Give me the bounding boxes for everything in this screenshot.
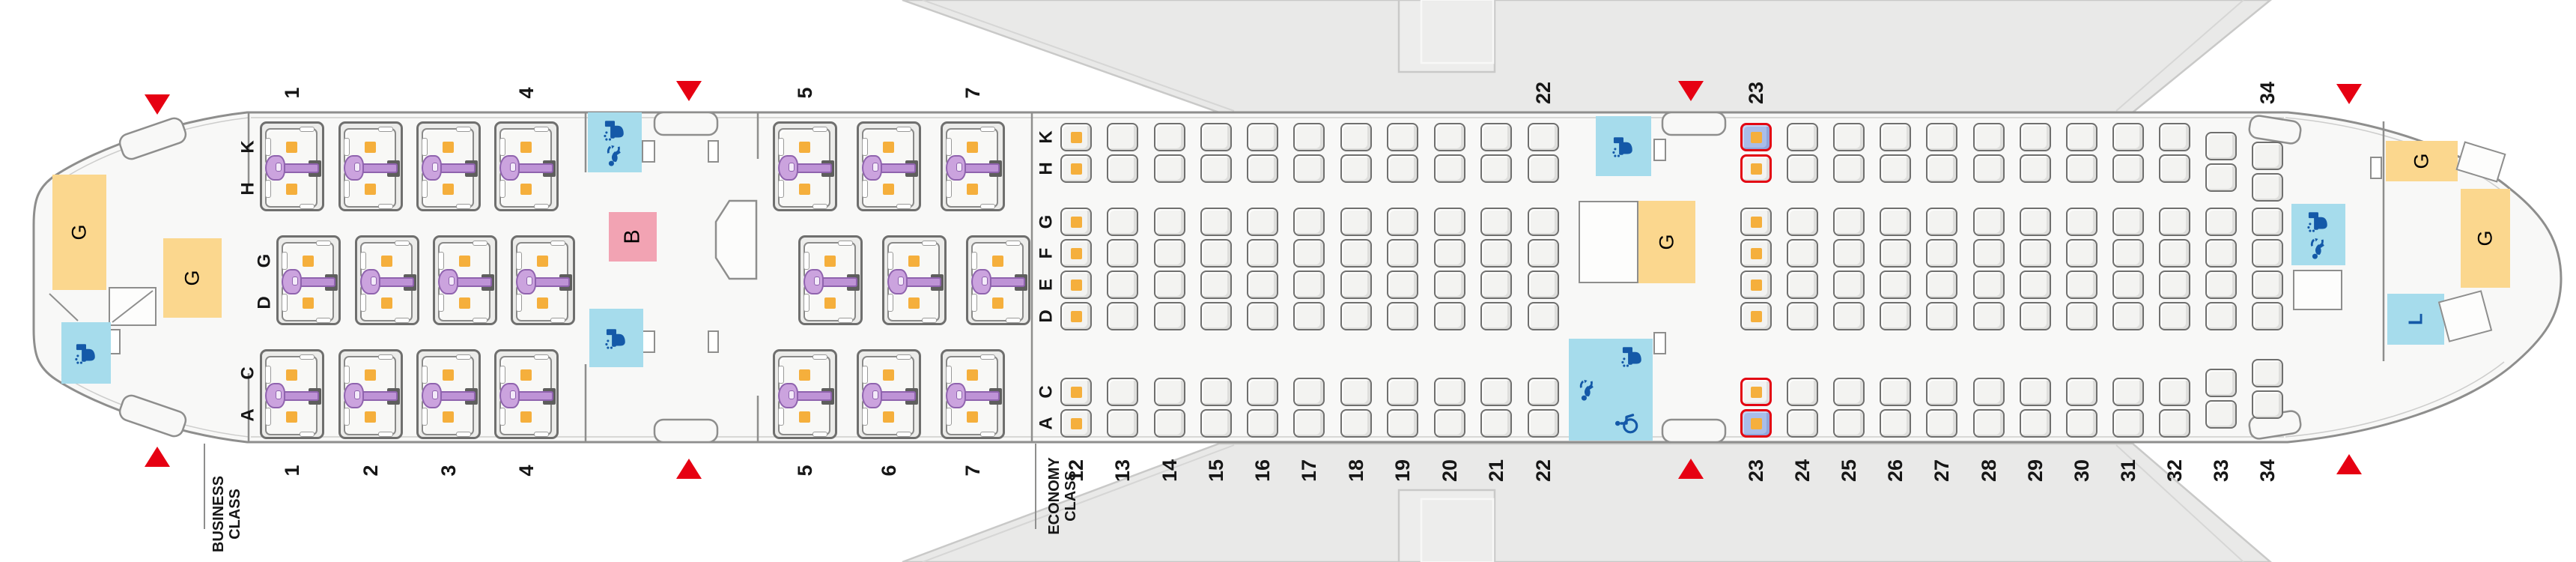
seat-24K[interactable] [1787, 123, 1818, 151]
seat-29K[interactable] [2020, 123, 2051, 151]
seat-18K[interactable] [1340, 123, 1372, 151]
seat-34E[interactable] [2252, 271, 2283, 299]
economy-seat-letter-F: F [1036, 248, 1055, 259]
seat-13C[interactable] [1107, 378, 1138, 406]
seat-23D[interactable] [1740, 302, 1772, 330]
seat-feature-marker [799, 411, 810, 423]
closet-block [2293, 270, 2342, 310]
seat-22A[interactable] [1528, 409, 1559, 438]
seat-25C[interactable] [1833, 378, 1865, 406]
seat-22C[interactable] [1528, 378, 1559, 406]
seat-31H[interactable] [2112, 154, 2144, 183]
armrest [300, 127, 315, 132]
seat-32H[interactable] [2159, 154, 2190, 183]
economy-seat-letter-A: A [1036, 417, 1055, 429]
seat-27C[interactable] [1926, 378, 1957, 406]
seat-25D[interactable] [1833, 302, 1865, 330]
seat-30F[interactable] [2066, 239, 2097, 268]
attendant-seat [643, 331, 654, 352]
seat-34C[interactable] [2252, 359, 2283, 387]
seat-feature-marker [1751, 418, 1762, 429]
seat-15E[interactable] [1200, 271, 1232, 299]
business-seat-letter-H: H [238, 182, 257, 195]
aircraft-seat-map: BUSINESS CLASS ECONOMY CLASS GG B G [0, 0, 2576, 562]
seat-30A[interactable] [2066, 409, 2097, 438]
seat-25F[interactable] [1833, 239, 1865, 268]
seat-14E[interactable] [1154, 271, 1185, 299]
seat-16G[interactable] [1247, 208, 1278, 236]
bar-counter-block-label: B [621, 229, 645, 244]
seat-15G[interactable] [1200, 208, 1232, 236]
seat-16C[interactable] [1247, 378, 1278, 406]
seat-26C[interactable] [1880, 378, 1911, 406]
headrest [971, 294, 977, 312]
seat-12K[interactable] [1060, 123, 1092, 151]
seat-feature-marker [883, 411, 894, 423]
seat-28D[interactable] [1973, 302, 2005, 330]
seat-21D[interactable] [1480, 302, 1512, 330]
seat-21E[interactable] [1480, 271, 1512, 299]
seat-12H[interactable] [1060, 154, 1092, 183]
armrest [378, 354, 393, 360]
seat-16H[interactable] [1247, 154, 1278, 183]
seat-14F[interactable] [1154, 239, 1185, 268]
toilet-icon [2306, 208, 2331, 234]
armrest [395, 241, 410, 246]
seat-14D[interactable] [1154, 302, 1185, 330]
seat-19F[interactable] [1387, 239, 1418, 268]
seat-24A[interactable] [1787, 409, 1818, 438]
seat-14G[interactable] [1154, 208, 1185, 236]
seat-feature-marker [443, 411, 454, 423]
seat-30E[interactable] [2066, 271, 2097, 299]
seat-28H[interactable] [1973, 154, 2005, 183]
armrest [550, 241, 565, 246]
seat-ottoman [946, 155, 966, 181]
seat-26F[interactable] [1880, 239, 1911, 268]
seat-31D[interactable] [2112, 302, 2144, 330]
seat-17F[interactable] [1293, 239, 1325, 268]
row-label-bottom-7: 7 [962, 465, 983, 476]
seat-33H[interactable] [2205, 163, 2237, 192]
seat-12A[interactable] [1060, 409, 1092, 438]
seat-14H[interactable] [1154, 154, 1185, 183]
seat-29E[interactable] [2020, 271, 2051, 299]
seat-18A[interactable] [1340, 409, 1372, 438]
armrest [1006, 318, 1021, 323]
seat-27F[interactable] [1926, 239, 1957, 268]
seat-27D[interactable] [1926, 302, 1957, 330]
seat-32F[interactable] [2159, 239, 2190, 268]
seat-30H[interactable] [2066, 154, 2097, 183]
galley-block-label: G [2411, 153, 2434, 169]
headrest [516, 252, 522, 270]
exit-marker-bottom-door4 [2336, 454, 2362, 474]
headrest [862, 138, 868, 156]
seat-33D[interactable] [2205, 302, 2237, 330]
armrest [456, 127, 471, 132]
seat-18C[interactable] [1340, 378, 1372, 406]
seat-23E[interactable] [1740, 271, 1772, 299]
seat-21H[interactable] [1480, 154, 1512, 183]
seat-23A[interactable] [1740, 409, 1772, 438]
seat-25G[interactable] [1833, 208, 1865, 236]
seat-27H[interactable] [1926, 154, 1957, 183]
seat-ottoman [360, 269, 380, 294]
seat-22D[interactable] [1528, 302, 1559, 330]
seat-34D[interactable] [2252, 302, 2283, 330]
seat-22K[interactable] [1528, 123, 1559, 151]
seat-31A[interactable] [2112, 409, 2144, 438]
attendant-seat [1654, 333, 1665, 354]
seat-21A[interactable] [1480, 409, 1512, 438]
seat-32C[interactable] [2159, 378, 2190, 406]
business-seat-letter-A: A [238, 408, 257, 421]
seat-19D[interactable] [1387, 302, 1418, 330]
seat-33K[interactable] [2205, 132, 2237, 160]
seat-32E[interactable] [2159, 271, 2190, 299]
armrest [378, 432, 393, 437]
headrest [422, 180, 428, 198]
armrest [896, 354, 911, 360]
economy-seat-letter-E: E [1036, 279, 1055, 291]
seat-26E[interactable] [1880, 271, 1911, 299]
business-seat-unit-row5 [773, 349, 837, 439]
business-seat-unit-row4 [494, 121, 559, 211]
seat-33F[interactable] [2205, 239, 2237, 268]
seat-25A[interactable] [1833, 409, 1865, 438]
seat-22E[interactable] [1528, 271, 1559, 299]
seat-12E[interactable] [1060, 271, 1092, 299]
seat-28A[interactable] [1973, 409, 2005, 438]
seat-19C[interactable] [1387, 378, 1418, 406]
armrest [896, 432, 911, 437]
seat-20A[interactable] [1434, 409, 1465, 438]
seat-13K[interactable] [1107, 123, 1138, 151]
seat-18D[interactable] [1340, 302, 1372, 330]
seat-16F[interactable] [1247, 239, 1278, 268]
headrest [422, 138, 428, 156]
attendant-seat [708, 331, 718, 352]
seat-29D[interactable] [2020, 302, 2051, 330]
seat-12C[interactable] [1060, 378, 1092, 406]
baby-care-icon [602, 142, 628, 168]
seat-13G[interactable] [1107, 208, 1138, 236]
seat-29G[interactable] [2020, 208, 2051, 236]
seat-17H[interactable] [1293, 154, 1325, 183]
seat-26K[interactable] [1880, 123, 1911, 151]
seat-13A[interactable] [1107, 409, 1138, 438]
seat-26H[interactable] [1880, 154, 1911, 183]
business-seat-unit-row2 [338, 349, 403, 439]
seat-33G[interactable] [2205, 208, 2237, 236]
seat-12D[interactable] [1060, 302, 1092, 330]
seat-feature-marker [520, 369, 532, 381]
seat-28F[interactable] [1973, 239, 2005, 268]
seat-16D[interactable] [1247, 302, 1278, 330]
headrest [887, 294, 893, 312]
headrest [265, 408, 271, 426]
seat-23H[interactable] [1740, 154, 1772, 183]
seat-ottoman [499, 383, 520, 408]
seat-feature-marker [1071, 163, 1082, 175]
galley-block-label: G [181, 270, 204, 285]
seat-20D[interactable] [1434, 302, 1465, 330]
armrest [896, 127, 911, 132]
seat-33C[interactable] [2205, 369, 2237, 397]
headrest [360, 294, 366, 312]
headrest [344, 366, 350, 384]
seat-12F[interactable] [1060, 239, 1092, 268]
seat-14K[interactable] [1154, 123, 1185, 151]
seat-21G[interactable] [1480, 208, 1512, 236]
seat-17C[interactable] [1293, 378, 1325, 406]
seat-feature-marker [1751, 132, 1762, 143]
business-seat-unit-row4 [511, 235, 575, 325]
closet-block [1579, 201, 1638, 283]
seat-31C[interactable] [2112, 378, 2144, 406]
seat-24D[interactable] [1787, 302, 1818, 330]
seat-31G[interactable] [2112, 208, 2144, 236]
seat-29H[interactable] [2020, 154, 2051, 183]
seat-23F[interactable] [1740, 239, 1772, 268]
seat-feature-marker [381, 297, 392, 309]
row-label-bottom-21: 21 [1486, 459, 1507, 482]
seat-20K[interactable] [1434, 123, 1465, 151]
seat-feature-marker [443, 184, 454, 195]
seat-34A[interactable] [2252, 390, 2283, 419]
headrest [946, 180, 952, 198]
toilet-icon [602, 117, 628, 142]
galley-block: G [2386, 141, 2458, 181]
seat-15F[interactable] [1200, 239, 1232, 268]
business-seat-letter-G: G [255, 254, 273, 268]
seat-34H[interactable] [2252, 173, 2283, 202]
attendant-seat [2371, 157, 2381, 178]
seat-23G[interactable] [1740, 208, 1772, 236]
seat-31K[interactable] [2112, 123, 2144, 151]
seat-16K[interactable] [1247, 123, 1278, 151]
seat-13F[interactable] [1107, 239, 1138, 268]
headrest [887, 252, 893, 270]
galley-block-label: G [68, 224, 91, 240]
seat-24G[interactable] [1787, 208, 1818, 236]
seat-feature-marker [365, 369, 376, 381]
seat-24C[interactable] [1787, 378, 1818, 406]
seat-32A[interactable] [2159, 409, 2190, 438]
seat-12G[interactable] [1060, 208, 1092, 236]
seat-18G[interactable] [1340, 208, 1372, 236]
business-class-label: BUSINESS CLASS [210, 476, 243, 552]
seat-14C[interactable] [1154, 378, 1185, 406]
seat-20E[interactable] [1434, 271, 1465, 299]
seat-20C[interactable] [1434, 378, 1465, 406]
seat-19E[interactable] [1387, 271, 1418, 299]
business-seat-letter-K: K [238, 140, 257, 153]
seat-30G[interactable] [2066, 208, 2097, 236]
seat-feature-marker [520, 142, 532, 153]
seat-31E[interactable] [2112, 271, 2144, 299]
seat-25K[interactable] [1833, 123, 1865, 151]
seat-32D[interactable] [2159, 302, 2190, 330]
row-label-bottom-14: 14 [1159, 459, 1180, 482]
row-label-bottom-27: 27 [1931, 459, 1952, 482]
seat-34K[interactable] [2252, 142, 2283, 170]
business-seat-letter-C: C [238, 366, 257, 379]
armrest [534, 204, 549, 209]
seat-32K[interactable] [2159, 123, 2190, 151]
seat-20F[interactable] [1434, 239, 1465, 268]
seat-15C[interactable] [1200, 378, 1232, 406]
seat-28K[interactable] [1973, 123, 2005, 151]
armrest [300, 204, 315, 209]
seat-feature-marker [824, 297, 836, 309]
seat-21F[interactable] [1480, 239, 1512, 268]
row-label-top-5: 5 [795, 87, 815, 98]
seat-19A[interactable] [1387, 409, 1418, 438]
lavatory-block [2291, 204, 2345, 265]
seat-22G[interactable] [1528, 208, 1559, 236]
business-seat-unit-row3 [416, 121, 481, 211]
exit-marker-top-door1 [145, 94, 170, 115]
headrest [265, 366, 271, 384]
seat-22F[interactable] [1528, 239, 1559, 268]
seat-32G[interactable] [2159, 208, 2190, 236]
seat-13E[interactable] [1107, 271, 1138, 299]
engine-top [1399, 0, 1495, 72]
seat-21K[interactable] [1480, 123, 1512, 151]
seat-ottoman [265, 383, 285, 408]
lavatory-block: L [2387, 294, 2444, 345]
bar-counter-block: B [609, 212, 657, 262]
seat-33E[interactable] [2205, 271, 2237, 299]
seat-13D[interactable] [1107, 302, 1138, 330]
seat-27G[interactable] [1926, 208, 1957, 236]
seat-27A[interactable] [1926, 409, 1957, 438]
seat-30K[interactable] [2066, 123, 2097, 151]
seat-29C[interactable] [2020, 378, 2051, 406]
seat-17K[interactable] [1293, 123, 1325, 151]
armrest [456, 204, 471, 209]
seat-31F[interactable] [2112, 239, 2144, 268]
seat-24F[interactable] [1787, 239, 1818, 268]
armrest [812, 127, 827, 132]
row-label-bottom-28: 28 [1978, 459, 1999, 482]
seat-feature-marker [799, 369, 810, 381]
seat-15K[interactable] [1200, 123, 1232, 151]
seat-15D[interactable] [1200, 302, 1232, 330]
business-seat-unit-row7 [941, 121, 1005, 211]
seat-17A[interactable] [1293, 409, 1325, 438]
seat-17E[interactable] [1293, 271, 1325, 299]
business-seat-unit-row5 [798, 235, 863, 325]
seat-feature-marker [286, 411, 297, 423]
seat-34G[interactable] [2252, 208, 2283, 236]
seat-20H[interactable] [1434, 154, 1465, 183]
attendant-seat [1654, 139, 1665, 160]
seat-15A[interactable] [1200, 409, 1232, 438]
seat-22H[interactable] [1528, 154, 1559, 183]
seat-13H[interactable] [1107, 154, 1138, 183]
exit-marker-bottom-door3 [1678, 459, 1704, 479]
business-seat-unit-row4 [494, 349, 559, 439]
seat-24H[interactable] [1787, 154, 1818, 183]
seat-20G[interactable] [1434, 208, 1465, 236]
headrest [804, 252, 809, 270]
seat-25E[interactable] [1833, 271, 1865, 299]
seat-17D[interactable] [1293, 302, 1325, 330]
economy-seat-letter-C: C [1036, 385, 1055, 398]
seat-23K[interactable] [1740, 123, 1772, 151]
seat-19G[interactable] [1387, 208, 1418, 236]
headrest [422, 408, 428, 426]
seat-19K[interactable] [1387, 123, 1418, 151]
headrest [971, 252, 977, 270]
seat-23C[interactable] [1740, 378, 1772, 406]
seat-21C[interactable] [1480, 378, 1512, 406]
wheelchair-icon [1614, 411, 1639, 436]
seat-27E[interactable] [1926, 271, 1957, 299]
seat-18F[interactable] [1340, 239, 1372, 268]
headrest [778, 180, 784, 198]
galley-block-label: G [2474, 230, 2497, 246]
row-label-bottom-32: 32 [2164, 459, 2185, 482]
seat-28C[interactable] [1973, 378, 2005, 406]
seat-26G[interactable] [1880, 208, 1911, 236]
seat-17G[interactable] [1293, 208, 1325, 236]
seat-15H[interactable] [1200, 154, 1232, 183]
row-label-bottom-4: 4 [516, 465, 537, 476]
seat-26D[interactable] [1880, 302, 1911, 330]
seat-30C[interactable] [2066, 378, 2097, 406]
seat-28E[interactable] [1973, 271, 2005, 299]
business-seat-unit-row6 [857, 349, 921, 439]
seat-25H[interactable] [1833, 154, 1865, 183]
armrest [980, 432, 995, 437]
seat-18E[interactable] [1340, 271, 1372, 299]
seat-30D[interactable] [2066, 302, 2097, 330]
seat-26A[interactable] [1880, 409, 1911, 438]
row-label-bottom-17: 17 [1298, 459, 1319, 482]
seat-18H[interactable] [1340, 154, 1372, 183]
seat-33A[interactable] [2205, 400, 2237, 429]
seat-27K[interactable] [1926, 123, 1957, 151]
seat-feature-marker [1071, 217, 1082, 228]
seat-29F[interactable] [2020, 239, 2051, 268]
seat-24E[interactable] [1787, 271, 1818, 299]
exit-marker-bottom-door2 [676, 459, 702, 479]
armrest [300, 432, 315, 437]
seat-16A[interactable] [1247, 409, 1278, 438]
seat-34F[interactable] [2252, 239, 2283, 268]
seat-19H[interactable] [1387, 154, 1418, 183]
seat-feature-marker [365, 184, 376, 195]
seat-feature-marker [286, 184, 297, 195]
class-divider-line [204, 444, 205, 529]
headrest [344, 408, 350, 426]
row-label-bottom-5: 5 [795, 465, 815, 476]
seat-14A[interactable] [1154, 409, 1185, 438]
seat-feature-marker [1071, 311, 1082, 322]
seat-29A[interactable] [2020, 409, 2051, 438]
armrest [980, 354, 995, 360]
galley-block: G [52, 175, 106, 290]
class-divider-line [1035, 444, 1036, 529]
seat-16E[interactable] [1247, 271, 1278, 299]
seat-28G[interactable] [1973, 208, 2005, 236]
economy-seat-letter-G: G [1036, 215, 1055, 229]
headrest [946, 138, 952, 156]
